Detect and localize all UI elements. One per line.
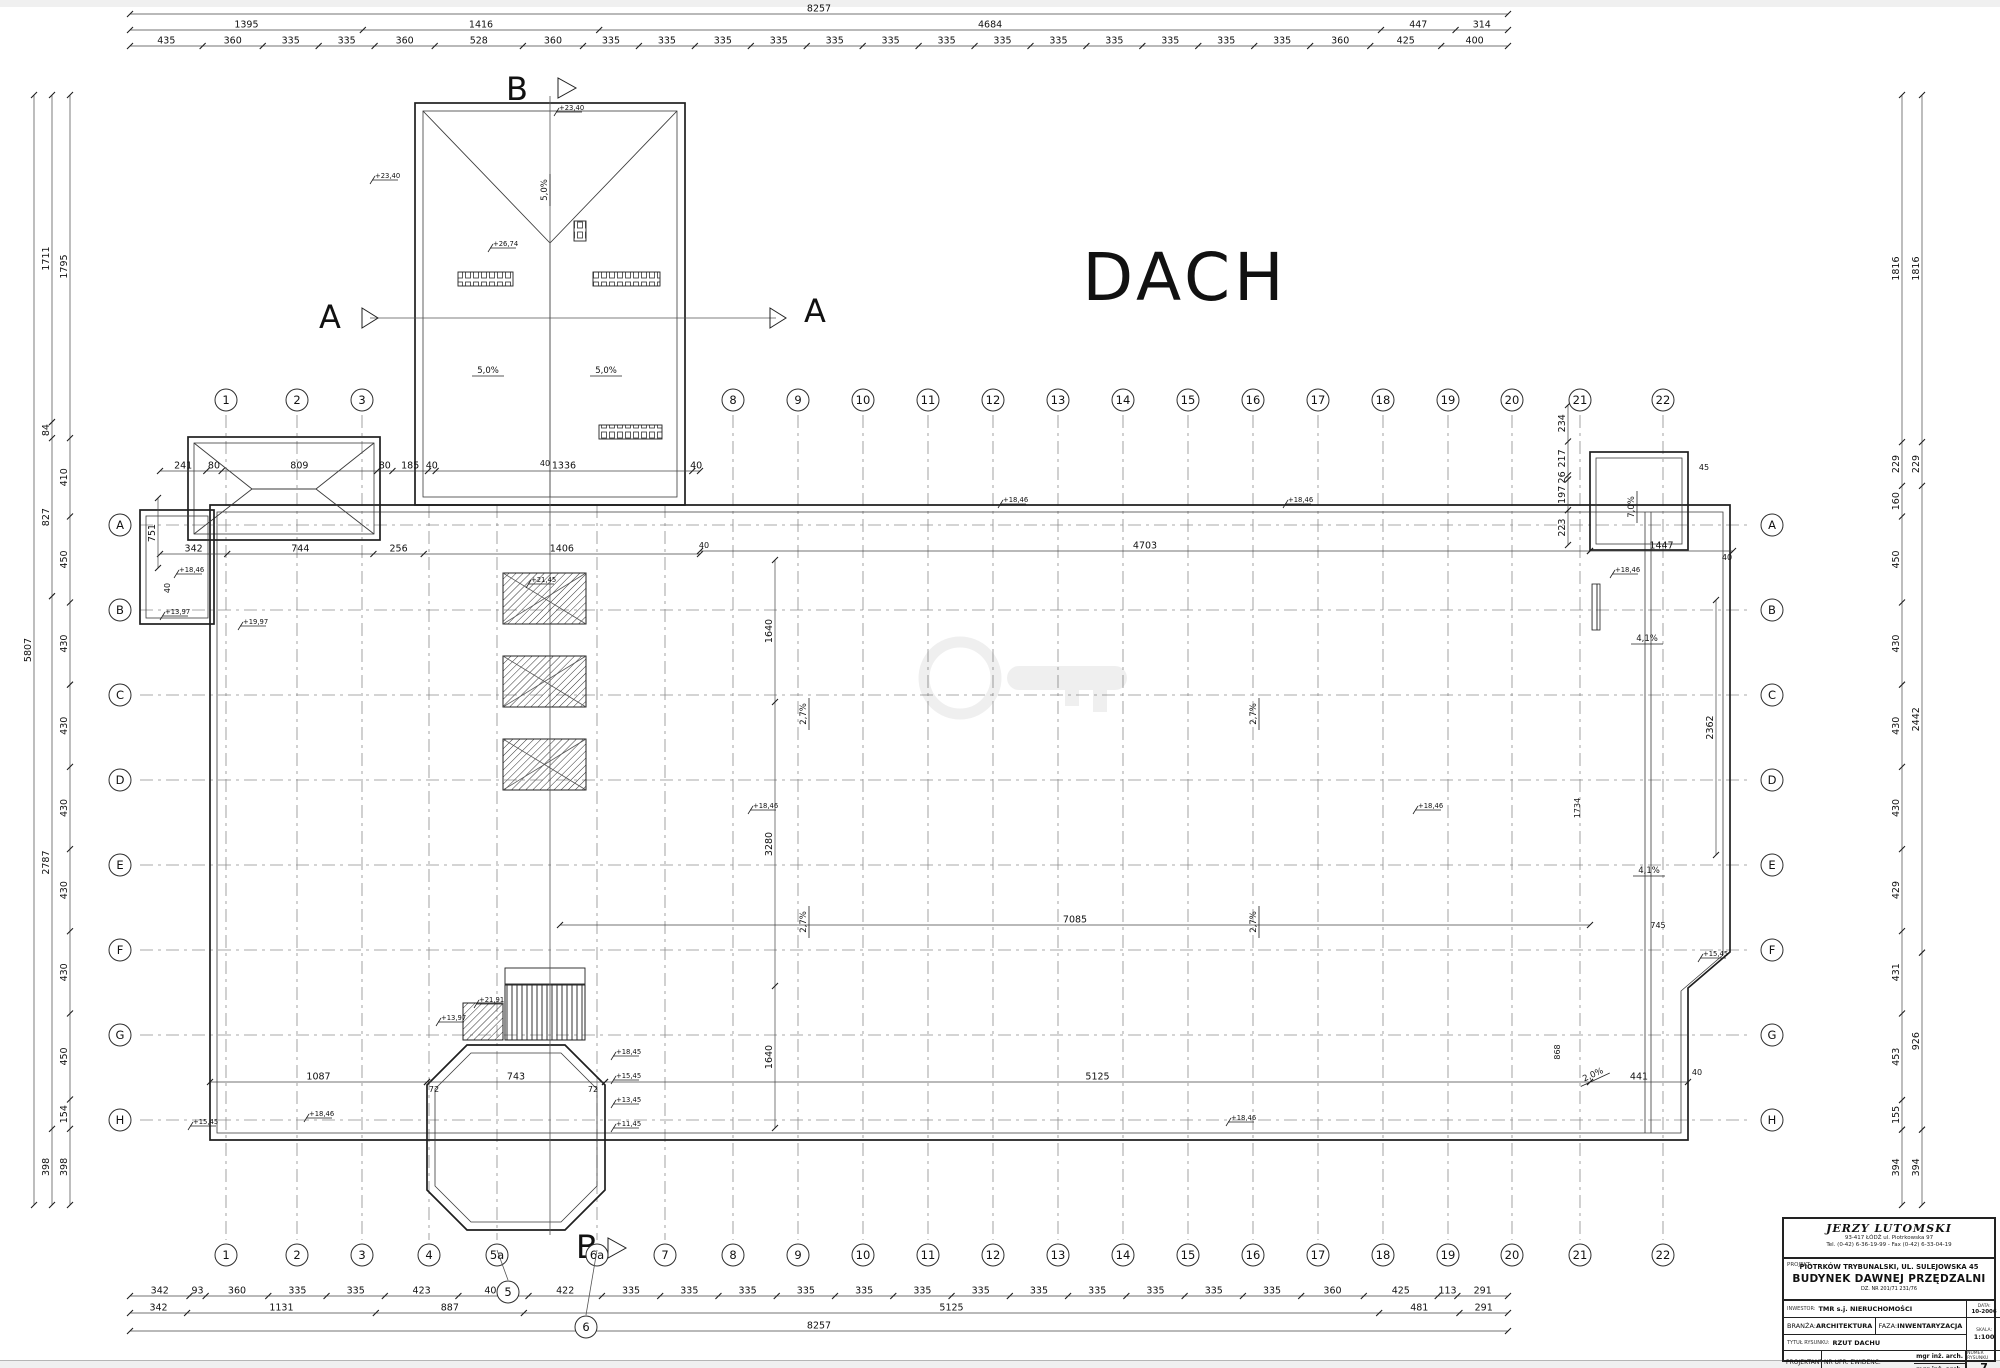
svg-text:2: 2 bbox=[293, 1248, 300, 1262]
svg-text:2442: 2442 bbox=[1911, 707, 1922, 731]
bottom-dim-fine: 3429336033533542340342233533533533533533… bbox=[127, 1286, 1511, 1300]
svg-text:+18,45: +18,45 bbox=[616, 1048, 641, 1056]
svg-text:F: F bbox=[117, 943, 124, 957]
svg-text:398: 398 bbox=[41, 1158, 52, 1176]
svg-text:G: G bbox=[1768, 1028, 1777, 1042]
svg-text:809: 809 bbox=[290, 461, 308, 472]
dim-751: 751 bbox=[147, 495, 161, 571]
svg-text:+15,45: +15,45 bbox=[193, 1118, 218, 1126]
dim-1087: 1087 bbox=[207, 1072, 430, 1086]
section-line-a: A A bbox=[319, 292, 826, 336]
svg-text:4,1%: 4,1% bbox=[1636, 634, 1658, 644]
svg-text:887: 887 bbox=[441, 1303, 459, 1314]
roof-vent-strip bbox=[599, 425, 662, 439]
svg-text:17: 17 bbox=[1311, 1248, 1326, 1262]
svg-text:11: 11 bbox=[921, 393, 936, 407]
svg-text:394: 394 bbox=[1911, 1158, 1922, 1176]
svg-text:1447: 1447 bbox=[1649, 541, 1673, 552]
svg-text:197: 197 bbox=[1557, 486, 1568, 504]
svg-text:335: 335 bbox=[338, 36, 356, 47]
svg-text:+18,46: +18,46 bbox=[1418, 802, 1443, 810]
dim-743: 743 bbox=[424, 1072, 608, 1086]
svg-text:+26,74: +26,74 bbox=[493, 240, 518, 248]
svg-text:394: 394 bbox=[1891, 1158, 1902, 1176]
svg-text:9: 9 bbox=[794, 1248, 801, 1262]
svg-text:398: 398 bbox=[59, 1158, 70, 1176]
watermark bbox=[924, 642, 1127, 714]
svg-text:160: 160 bbox=[1891, 492, 1902, 510]
svg-text:D: D bbox=[1768, 773, 1777, 787]
svg-text:291: 291 bbox=[1474, 1286, 1492, 1297]
svg-text:342: 342 bbox=[149, 1303, 167, 1314]
section-a-label-left: A bbox=[319, 298, 341, 336]
dim-tower-mid: 3427442561406 bbox=[157, 544, 703, 558]
dim-2362: 2362 bbox=[1705, 597, 1719, 858]
svg-text:827: 827 bbox=[41, 508, 52, 526]
date-cell: DATA:10-2006 bbox=[1967, 1301, 2000, 1318]
svg-text:335: 335 bbox=[1273, 36, 1291, 47]
svg-text:5,0%: 5,0% bbox=[595, 366, 617, 376]
right-dim-inner: 1816229160450430430430429431453155394 bbox=[1891, 92, 1905, 1208]
svg-text:447: 447 bbox=[1409, 20, 1427, 31]
svg-text:1795: 1795 bbox=[59, 254, 70, 278]
svg-text:335: 335 bbox=[1217, 36, 1235, 47]
svg-text:5125: 5125 bbox=[1085, 1072, 1109, 1083]
svg-text:1131: 1131 bbox=[269, 1303, 293, 1314]
svg-text:1816: 1816 bbox=[1911, 256, 1922, 280]
svg-text:B: B bbox=[1768, 603, 1776, 617]
svg-text:1416: 1416 bbox=[469, 20, 493, 31]
svg-text:528: 528 bbox=[470, 36, 488, 47]
svg-text:17: 17 bbox=[1311, 393, 1326, 407]
left-dim-outer: 5807 bbox=[23, 92, 37, 1208]
svg-text:+18,46: +18,46 bbox=[179, 566, 204, 574]
grid-bubbles-rows-right: ABCDEFGH bbox=[1761, 514, 1783, 1131]
dim-tower-top: 241808098018540133640 bbox=[157, 461, 703, 475]
svg-text:8: 8 bbox=[729, 393, 736, 407]
svg-text:E: E bbox=[116, 858, 123, 872]
svg-text:430: 430 bbox=[59, 799, 70, 817]
svg-text:45: 45 bbox=[1699, 463, 1709, 472]
svg-text:+18,46: +18,46 bbox=[1231, 1114, 1256, 1122]
svg-text:B: B bbox=[116, 603, 124, 617]
svg-text:7085: 7085 bbox=[1063, 915, 1087, 926]
svg-text:868: 868 bbox=[1553, 1044, 1562, 1059]
svg-text:335: 335 bbox=[882, 36, 900, 47]
svg-text:410: 410 bbox=[59, 468, 70, 486]
title-block-project: PROJEKT: PIOTRKÓW TRYBUNALSKI, UL. SULEJ… bbox=[1784, 1259, 1994, 1301]
svg-text:40: 40 bbox=[699, 541, 709, 550]
svg-text:5,0%: 5,0% bbox=[477, 366, 499, 376]
drawing-title: DACH bbox=[1082, 239, 1287, 316]
svg-text:360: 360 bbox=[544, 36, 562, 47]
svg-text:360: 360 bbox=[396, 36, 414, 47]
scale-cell: SKALA:1:100 bbox=[1967, 1318, 2000, 1351]
svg-text:441: 441 bbox=[1630, 1072, 1648, 1083]
svg-text:18: 18 bbox=[1376, 393, 1391, 407]
svg-text:335: 335 bbox=[1030, 1286, 1048, 1297]
branch-phase-row: BRANŻA:ARCHITEKTURA FAZA:INWENTARYZACJA bbox=[1784, 1318, 1967, 1335]
dim-4703: 4703 bbox=[697, 541, 1593, 555]
svg-text:9: 9 bbox=[794, 393, 801, 407]
svg-text:13: 13 bbox=[1051, 393, 1066, 407]
svg-text:335: 335 bbox=[937, 36, 955, 47]
section-b-label-top: B bbox=[506, 70, 528, 108]
svg-text:335: 335 bbox=[993, 36, 1011, 47]
svg-text:12: 12 bbox=[986, 1248, 1001, 1262]
grid-bubbles-top: 1238910111213141516171819202122 bbox=[215, 389, 1674, 411]
svg-text:425: 425 bbox=[1397, 36, 1415, 47]
svg-text:450: 450 bbox=[59, 550, 70, 568]
svg-text:+18,46: +18,46 bbox=[309, 1110, 334, 1118]
svg-text:20: 20 bbox=[1505, 1248, 1520, 1262]
svg-text:5: 5 bbox=[504, 1285, 511, 1299]
svg-text:2: 2 bbox=[293, 393, 300, 407]
svg-text:C: C bbox=[1768, 688, 1776, 702]
svg-text:234: 234 bbox=[1557, 414, 1568, 432]
svg-text:+18,46: +18,46 bbox=[1288, 496, 1313, 504]
svg-text:229: 229 bbox=[1911, 455, 1922, 473]
svg-text:450: 450 bbox=[1891, 550, 1902, 568]
svg-text:1640: 1640 bbox=[764, 1045, 775, 1069]
svg-text:429: 429 bbox=[1891, 881, 1902, 899]
svg-text:335: 335 bbox=[680, 1286, 698, 1297]
svg-text:1711: 1711 bbox=[41, 246, 52, 270]
svg-text:+18,46: +18,46 bbox=[1003, 496, 1028, 504]
svg-text:19: 19 bbox=[1441, 393, 1456, 407]
svg-text:335: 335 bbox=[282, 36, 300, 47]
svg-text:10: 10 bbox=[856, 1248, 871, 1262]
svg-text:12: 12 bbox=[986, 393, 1001, 407]
left-dim-inner: 1795410450430430430430430450154398 bbox=[59, 92, 73, 1208]
svg-text:155: 155 bbox=[1891, 1106, 1902, 1124]
svg-text:745: 745 bbox=[1650, 921, 1665, 930]
dim-right-tower-col: 23421726197223 bbox=[1557, 402, 1571, 548]
svg-text:+19,97: +19,97 bbox=[243, 618, 268, 626]
svg-text:1734: 1734 bbox=[1573, 798, 1582, 818]
investor-row: INWESTOR:TMR s.j. NIERUCHOMOŚCI bbox=[1784, 1301, 1967, 1318]
svg-text:4,1%: 4,1% bbox=[1638, 866, 1660, 876]
svg-text:10: 10 bbox=[856, 393, 871, 407]
svg-text:7: 7 bbox=[661, 1248, 668, 1262]
svg-text:8: 8 bbox=[729, 1248, 736, 1262]
svg-text:335: 335 bbox=[770, 36, 788, 47]
bottom-dim-mid: 34211318875125481291 bbox=[127, 1303, 1511, 1317]
project-label: PROJEKT: bbox=[1787, 1262, 1811, 1268]
svg-text:335: 335 bbox=[1105, 36, 1123, 47]
svg-text:430: 430 bbox=[59, 635, 70, 653]
svg-text:335: 335 bbox=[1146, 1286, 1164, 1297]
svg-text:256: 256 bbox=[389, 544, 407, 555]
svg-text:3: 3 bbox=[358, 393, 365, 407]
company-phone: Tel. (0-42) 6-36-19-99 - Fax (0-42) 6-33… bbox=[1784, 1242, 1994, 1249]
svg-text:19: 19 bbox=[1441, 1248, 1456, 1262]
svg-text:40: 40 bbox=[1722, 553, 1732, 562]
svg-text:744: 744 bbox=[291, 544, 309, 555]
right-dim-mid: 18162292442926394 bbox=[1911, 92, 1925, 1208]
svg-text:+13,45: +13,45 bbox=[616, 1096, 641, 1104]
svg-text:241: 241 bbox=[174, 461, 192, 472]
top-dim-total: 8257 bbox=[127, 4, 1511, 18]
svg-text:335: 335 bbox=[1161, 36, 1179, 47]
svg-text:40: 40 bbox=[540, 459, 550, 468]
svg-text:1087: 1087 bbox=[306, 1072, 330, 1083]
svg-text:217: 217 bbox=[1557, 449, 1568, 467]
left-dim-mid: 1711848272787398 bbox=[41, 92, 55, 1208]
svg-text:+21,91: +21,91 bbox=[479, 996, 504, 1004]
svg-text:1395: 1395 bbox=[234, 20, 258, 31]
dim-1447: 1447 bbox=[1587, 541, 1736, 555]
svg-text:1336: 1336 bbox=[552, 461, 576, 472]
svg-text:335: 335 bbox=[714, 36, 732, 47]
svg-text:335: 335 bbox=[972, 1286, 990, 1297]
svg-text:72: 72 bbox=[429, 1085, 439, 1094]
designer-rows: PROJEKTANT: mgr inż. arch. Bożena Nowack… bbox=[1784, 1351, 1967, 1368]
svg-text:431: 431 bbox=[1891, 963, 1902, 981]
svg-text:422: 422 bbox=[556, 1286, 574, 1297]
svg-text:+11,45: +11,45 bbox=[616, 1120, 641, 1128]
grid-axes-horizontal bbox=[140, 525, 1752, 1120]
svg-text:185: 185 bbox=[401, 461, 419, 472]
svg-text:360: 360 bbox=[1323, 1286, 1341, 1297]
svg-text:7,0%: 7,0% bbox=[1627, 496, 1637, 518]
svg-text:+13,97: +13,97 bbox=[165, 608, 190, 616]
roof-vent-strip bbox=[593, 272, 660, 286]
svg-text:335: 335 bbox=[797, 1286, 815, 1297]
svg-text:291: 291 bbox=[1475, 1303, 1493, 1314]
svg-text:1640: 1640 bbox=[764, 619, 775, 643]
svg-text:926: 926 bbox=[1911, 1032, 1922, 1050]
svg-text:C: C bbox=[116, 688, 124, 702]
svg-text:335: 335 bbox=[658, 36, 676, 47]
svg-text:2,7%: 2,7% bbox=[1249, 911, 1259, 933]
svg-text:G: G bbox=[116, 1028, 125, 1042]
svg-text:430: 430 bbox=[1891, 717, 1902, 735]
level-marks: +23,40 +23,40 +26,74 +18,46 +18,46 +13,9… bbox=[160, 104, 1728, 1132]
title-block: JERZY LUTOMSKI 93-417 ŁÓDŹ ul. Piotrkows… bbox=[1782, 1217, 1996, 1362]
svg-text:4703: 4703 bbox=[1133, 541, 1157, 552]
svg-text:430: 430 bbox=[1891, 799, 1902, 817]
roof-hatch-box bbox=[574, 221, 586, 241]
project-plot: DZ. NR 201/71 231/76 bbox=[1784, 1286, 1994, 1292]
svg-text:8257: 8257 bbox=[807, 4, 831, 15]
top-dim-fine: 4353603353353605283603353353353353353353… bbox=[127, 36, 1511, 50]
svg-text:2362: 2362 bbox=[1705, 715, 1716, 739]
svg-text:15: 15 bbox=[1181, 393, 1196, 407]
svg-text:5125: 5125 bbox=[939, 1303, 963, 1314]
svg-text:335: 335 bbox=[602, 36, 620, 47]
title-block-table: INWESTOR:TMR s.j. NIERUCHOMOŚCI DATA:10-… bbox=[1784, 1301, 1994, 1358]
svg-text:A: A bbox=[1768, 518, 1776, 532]
svg-text:335: 335 bbox=[347, 1286, 365, 1297]
svg-text:H: H bbox=[1768, 1113, 1777, 1127]
svg-text:335: 335 bbox=[1049, 36, 1067, 47]
svg-text:16: 16 bbox=[1246, 1248, 1261, 1262]
svg-text:+15,45: +15,45 bbox=[1703, 950, 1728, 958]
svg-text:335: 335 bbox=[855, 1286, 873, 1297]
svg-text:80: 80 bbox=[208, 461, 220, 472]
grid-bubbles-rows-left: ABCDEFGH bbox=[109, 514, 131, 1131]
svg-text:93: 93 bbox=[192, 1286, 204, 1297]
svg-text:751: 751 bbox=[147, 524, 158, 542]
svg-text:+21,45: +21,45 bbox=[531, 576, 556, 584]
svg-text:360: 360 bbox=[224, 36, 242, 47]
svg-text:11: 11 bbox=[921, 1248, 936, 1262]
svg-text:5807: 5807 bbox=[23, 638, 34, 662]
svg-text:+23,40: +23,40 bbox=[559, 104, 584, 112]
svg-text:423: 423 bbox=[413, 1286, 431, 1297]
svg-text:5,0%: 5,0% bbox=[540, 179, 550, 201]
svg-text:430: 430 bbox=[59, 881, 70, 899]
svg-text:335: 335 bbox=[739, 1286, 757, 1297]
svg-text:1406: 1406 bbox=[550, 544, 574, 555]
svg-text:342: 342 bbox=[151, 1286, 169, 1297]
svg-text:+13,97: +13,97 bbox=[441, 1014, 466, 1022]
dim-7085: 7085 bbox=[557, 915, 1593, 929]
svg-text:1816: 1816 bbox=[1891, 256, 1902, 280]
svg-text:3: 3 bbox=[358, 1248, 365, 1262]
svg-text:335: 335 bbox=[288, 1286, 306, 1297]
svg-text:3280: 3280 bbox=[764, 832, 775, 856]
project-address: PIOTRKÓW TRYBUNALSKI, UL. SULEJOWSKA 45 bbox=[1784, 1263, 1994, 1271]
grid-axes-vertical-main bbox=[226, 415, 1663, 1240]
svg-text:360: 360 bbox=[228, 1286, 246, 1297]
svg-text:450: 450 bbox=[59, 1047, 70, 1065]
svg-text:335: 335 bbox=[622, 1286, 640, 1297]
svg-text:335: 335 bbox=[1263, 1286, 1281, 1297]
roof-plan-sheet: { "title": "DACH", "sections": { "a": "A… bbox=[0, 0, 2000, 1368]
company-address: 93-417 ŁÓDŹ ul. Piotrkowska 97 bbox=[1784, 1235, 1994, 1242]
svg-text:453: 453 bbox=[1891, 1048, 1902, 1066]
svg-text:40: 40 bbox=[690, 461, 702, 472]
svg-text:6: 6 bbox=[582, 1320, 589, 1334]
svg-text:435: 435 bbox=[157, 36, 175, 47]
svg-text:72: 72 bbox=[588, 1085, 598, 1094]
svg-text:80: 80 bbox=[379, 461, 391, 472]
roof-plan-drawing: A A B B DACH 8257 139514164684447314 435… bbox=[0, 0, 2000, 1368]
dim-5125: 5125 bbox=[602, 1072, 1593, 1086]
svg-text:335: 335 bbox=[826, 36, 844, 47]
svg-text:+18,46: +18,46 bbox=[753, 802, 778, 810]
svg-text:H: H bbox=[116, 1113, 125, 1127]
svg-text:113: 113 bbox=[1438, 1286, 1456, 1297]
svg-text:13: 13 bbox=[1051, 1248, 1066, 1262]
dim-b-axis-trio: 164032801640 bbox=[764, 557, 778, 1131]
svg-text:20: 20 bbox=[1505, 393, 1520, 407]
svg-text:223: 223 bbox=[1557, 519, 1568, 537]
grid-bubbles-bottom: 12345a6a78910111213141516171819202122 bbox=[215, 1244, 1674, 1266]
svg-text:335: 335 bbox=[1205, 1286, 1223, 1297]
svg-text:430: 430 bbox=[59, 717, 70, 735]
svg-text:40: 40 bbox=[426, 461, 438, 472]
drawing-title-row: TYTUŁ RYSUNKU:RZUT DACHU bbox=[1784, 1335, 1967, 1351]
svg-text:335: 335 bbox=[1088, 1286, 1106, 1297]
svg-text:21: 21 bbox=[1573, 1248, 1588, 1262]
svg-text:40: 40 bbox=[1692, 1068, 1702, 1077]
svg-text:2,7%: 2,7% bbox=[799, 703, 809, 725]
svg-text:40: 40 bbox=[163, 583, 172, 593]
svg-text:F: F bbox=[1769, 943, 1776, 957]
svg-text:1: 1 bbox=[222, 393, 229, 407]
svg-text:2787: 2787 bbox=[41, 850, 52, 874]
svg-text:16: 16 bbox=[1246, 393, 1261, 407]
svg-text:14: 14 bbox=[1116, 1248, 1131, 1262]
svg-text:22: 22 bbox=[1656, 393, 1671, 407]
svg-text:314: 314 bbox=[1473, 20, 1491, 31]
roof-stair-hatches bbox=[503, 573, 586, 790]
svg-text:481: 481 bbox=[1410, 1303, 1428, 1314]
svg-text:+15,45: +15,45 bbox=[616, 1072, 641, 1080]
svg-text:+23,40: +23,40 bbox=[375, 172, 400, 180]
svg-text:400: 400 bbox=[1466, 36, 1484, 47]
svg-text:360: 360 bbox=[1331, 36, 1349, 47]
project-building: BUDYNEK DAWNEJ PRZĘDZALNI bbox=[1784, 1273, 1994, 1285]
bottom-dim-total: 8257 bbox=[127, 1321, 1511, 1335]
svg-text:335: 335 bbox=[913, 1286, 931, 1297]
svg-text:2,7%: 2,7% bbox=[1249, 703, 1259, 725]
svg-text:430: 430 bbox=[1891, 635, 1902, 653]
svg-text:D: D bbox=[116, 773, 125, 787]
svg-text:229: 229 bbox=[1891, 455, 1902, 473]
svg-text:154: 154 bbox=[59, 1105, 70, 1123]
svg-text:1: 1 bbox=[222, 1248, 229, 1262]
drawing-number-cell: NUMER RYSUNKU7 bbox=[1967, 1351, 2000, 1368]
svg-text:2,0%: 2,0% bbox=[1581, 1066, 1605, 1084]
svg-text:+18,46: +18,46 bbox=[1615, 566, 1640, 574]
svg-text:E: E bbox=[1768, 858, 1775, 872]
svg-text:26: 26 bbox=[1557, 471, 1568, 483]
svg-text:743: 743 bbox=[507, 1072, 525, 1083]
svg-text:425: 425 bbox=[1392, 1286, 1410, 1297]
section-a-label-right: A bbox=[804, 292, 826, 330]
svg-text:2,7%: 2,7% bbox=[799, 911, 809, 933]
main-building-outline bbox=[210, 505, 1730, 1140]
svg-text:4: 4 bbox=[425, 1248, 432, 1262]
company-name: JERZY LUTOMSKI bbox=[1784, 1222, 1994, 1235]
svg-text:430: 430 bbox=[59, 963, 70, 981]
svg-text:21: 21 bbox=[1573, 393, 1588, 407]
svg-text:342: 342 bbox=[185, 544, 203, 555]
svg-text:22: 22 bbox=[1656, 1248, 1671, 1262]
roof-vent-strip bbox=[458, 272, 513, 286]
svg-text:18: 18 bbox=[1376, 1248, 1391, 1262]
stair-tower-octagon bbox=[427, 968, 605, 1230]
svg-text:A: A bbox=[116, 518, 124, 532]
svg-text:84: 84 bbox=[41, 424, 52, 436]
title-block-company: JERZY LUTOMSKI 93-417 ŁÓDŹ ul. Piotrkows… bbox=[1784, 1219, 1994, 1259]
svg-text:14: 14 bbox=[1116, 393, 1131, 407]
svg-text:4684: 4684 bbox=[978, 20, 1002, 31]
svg-text:8257: 8257 bbox=[807, 1321, 831, 1332]
svg-text:15: 15 bbox=[1181, 1248, 1196, 1262]
top-dim-mid: 139514164684447314 bbox=[127, 20, 1511, 34]
